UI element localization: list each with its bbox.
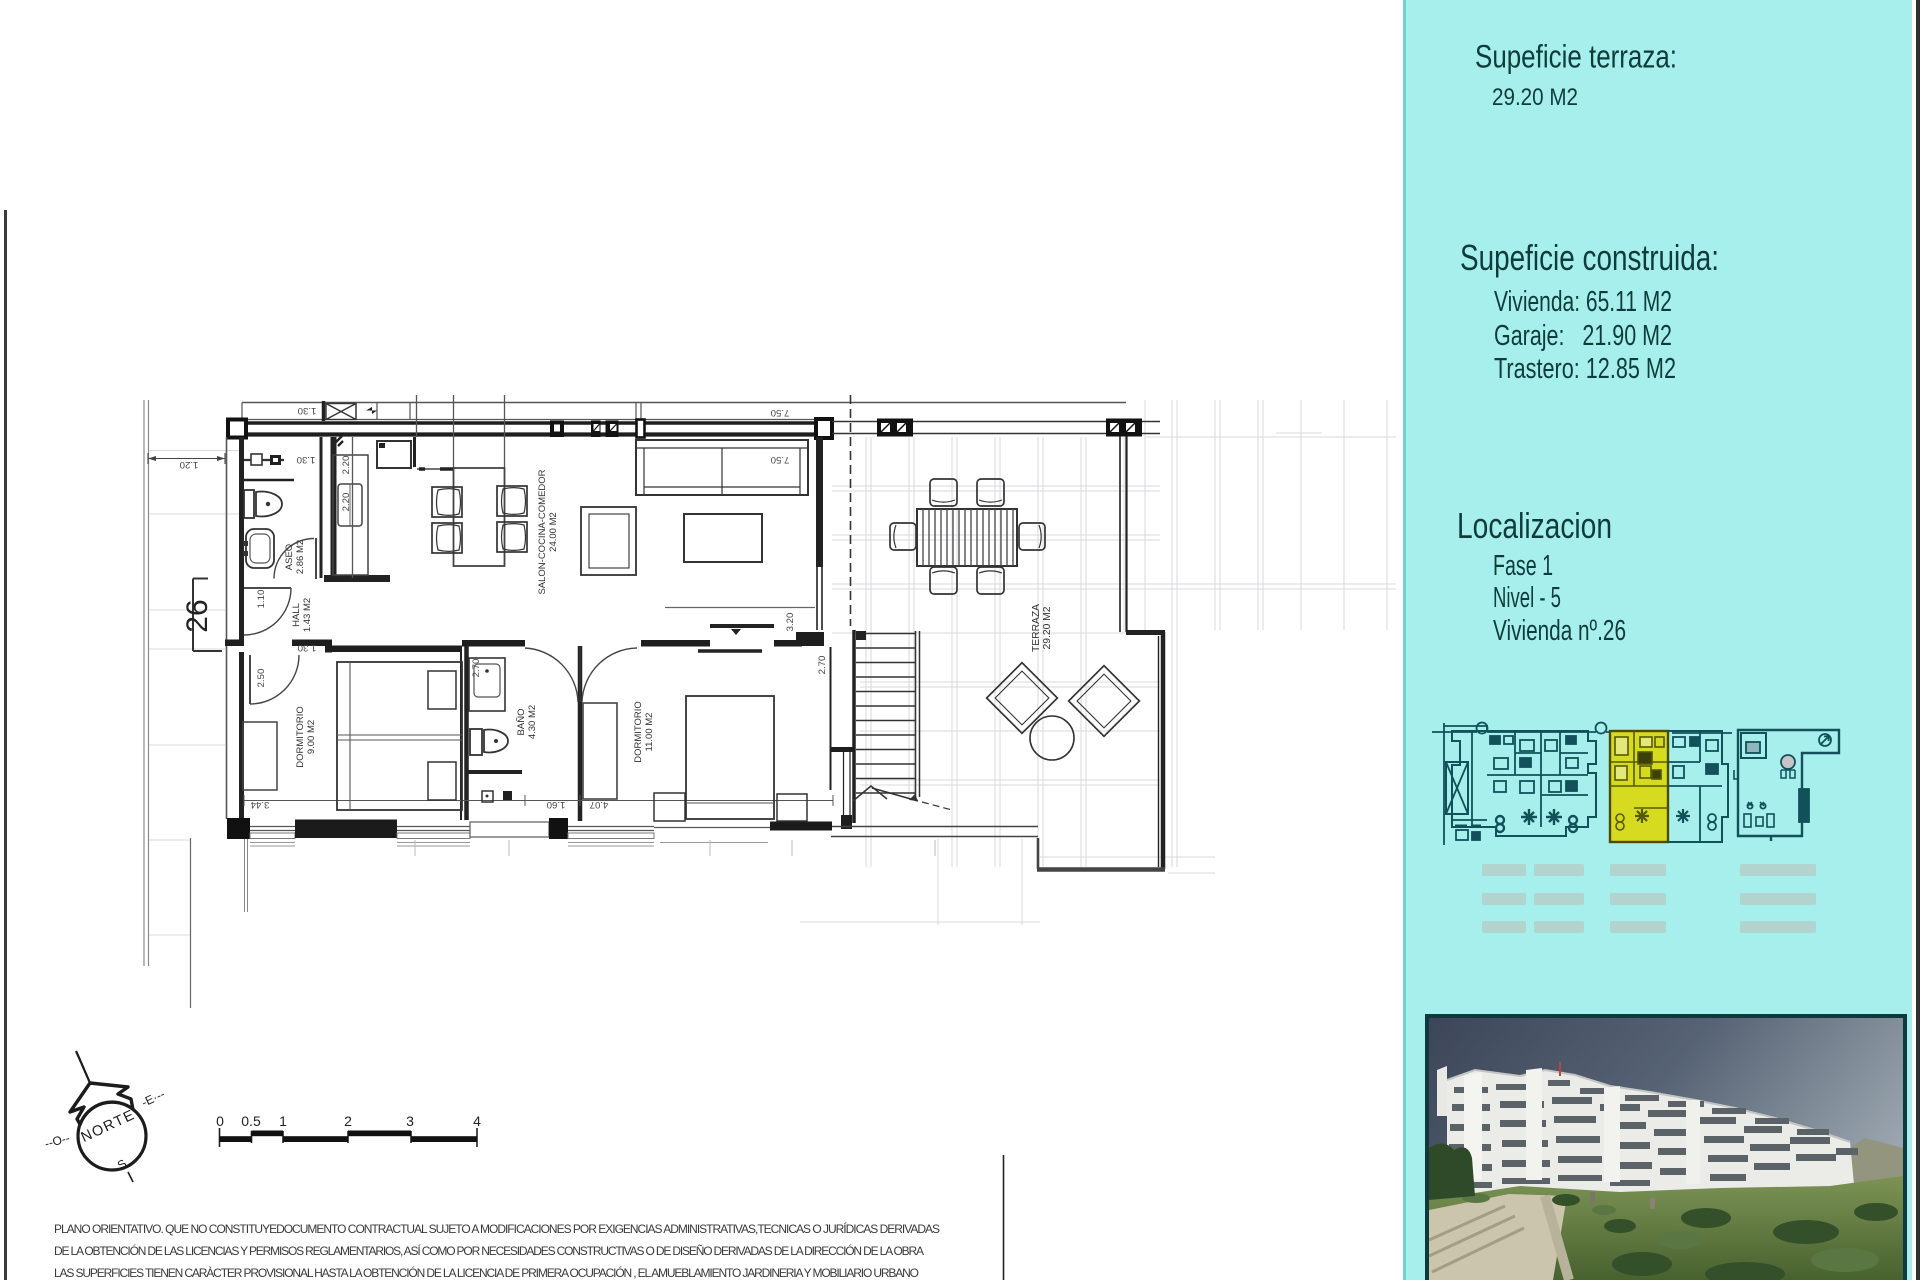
svg-text:1.20: 1.20 (180, 459, 199, 470)
svg-text:1.10: 1.10 (256, 590, 267, 609)
svg-text:2.20: 2.20 (341, 493, 352, 512)
svg-text:4.07: 4.07 (590, 799, 609, 810)
svg-text:DORMITORIO: DORMITORIO (633, 701, 644, 763)
svg-text:Vivienda nº.26: Vivienda nº.26 (1493, 615, 1626, 647)
svg-text:Fase 1: Fase 1 (1493, 550, 1553, 582)
svg-text:29.20 M2: 29.20 M2 (1492, 84, 1578, 111)
svg-text:4.30 M2: 4.30 M2 (527, 705, 538, 739)
svg-text:2: 2 (344, 1113, 352, 1129)
svg-text:DE LA OBTENCIÓN DE LAS LICENCI: DE LA OBTENCIÓN DE LAS LICENCIAS Y PERMI… (54, 1243, 924, 1258)
svg-text:1.43 M2: 1.43 M2 (302, 598, 313, 632)
svg-text:0.5: 0.5 (241, 1113, 261, 1129)
svg-text:24.00 M2: 24.00 M2 (548, 512, 559, 552)
svg-text:DORMITORIO: DORMITORIO (295, 706, 306, 768)
svg-text:Trastero: 12.85 M2: Trastero: 12.85 M2 (1494, 353, 1676, 385)
svg-text:4: 4 (473, 1113, 481, 1129)
svg-text:SALON-COCINA-COMEDOR: SALON-COCINA-COMEDOR (537, 469, 548, 594)
svg-text:BAÑO: BAÑO (516, 709, 527, 736)
svg-text:2.70: 2.70 (471, 659, 482, 678)
svg-text:Garaje: 21.90 M2: Garaje: 21.90 M2 (1494, 320, 1672, 352)
svg-text:Nivel - 5: Nivel - 5 (1493, 582, 1561, 614)
svg-text:9.00 M2: 9.00 M2 (306, 720, 317, 754)
svg-text:1.30: 1.30 (298, 405, 317, 416)
svg-text:HALL: HALL (291, 603, 302, 627)
svg-text:1.30: 1.30 (297, 454, 316, 465)
svg-text:0: 0 (216, 1113, 224, 1129)
svg-text:2.20: 2.20 (341, 456, 352, 475)
svg-text:7.50: 7.50 (771, 407, 790, 418)
svg-text:7.50: 7.50 (771, 454, 790, 465)
svg-text:LAS SUPERFICIES TIENEN CARÀCTE: LAS SUPERFICIES TIENEN CARÀCTER PROVISIO… (54, 1265, 919, 1280)
svg-text:TERRAZA: TERRAZA (1031, 604, 1042, 652)
svg-text:3.44: 3.44 (250, 799, 269, 810)
svg-text:1: 1 (279, 1113, 287, 1129)
svg-text:Localizacion: Localizacion (1457, 505, 1612, 546)
svg-text:29.20 M2: 29.20 M2 (1042, 606, 1053, 649)
svg-text:11.00 M2: 11.00 M2 (644, 713, 655, 752)
svg-text:3: 3 (406, 1113, 414, 1129)
svg-text:ASEO: ASEO (284, 544, 295, 570)
svg-text:2.86 M2: 2.86 M2 (295, 540, 306, 574)
svg-text:3.20: 3.20 (785, 613, 796, 632)
svg-text:Supeficie terraza:: Supeficie terraza: (1475, 39, 1677, 75)
svg-text:1.30: 1.30 (298, 642, 317, 653)
svg-text:26: 26 (181, 599, 214, 632)
svg-text:Supeficie construida:: Supeficie construida: (1460, 237, 1719, 278)
svg-text:PLANO ORIENTATIVO. QUE NO CONS: PLANO ORIENTATIVO. QUE NO CONSTITUYEDOCU… (54, 1221, 940, 1236)
svg-text:2.50: 2.50 (256, 669, 267, 688)
svg-text:1.60: 1.60 (547, 799, 566, 810)
svg-text:2.70: 2.70 (817, 656, 828, 675)
svg-text:Vivienda: 65.11 M2: Vivienda: 65.11 M2 (1494, 286, 1672, 318)
